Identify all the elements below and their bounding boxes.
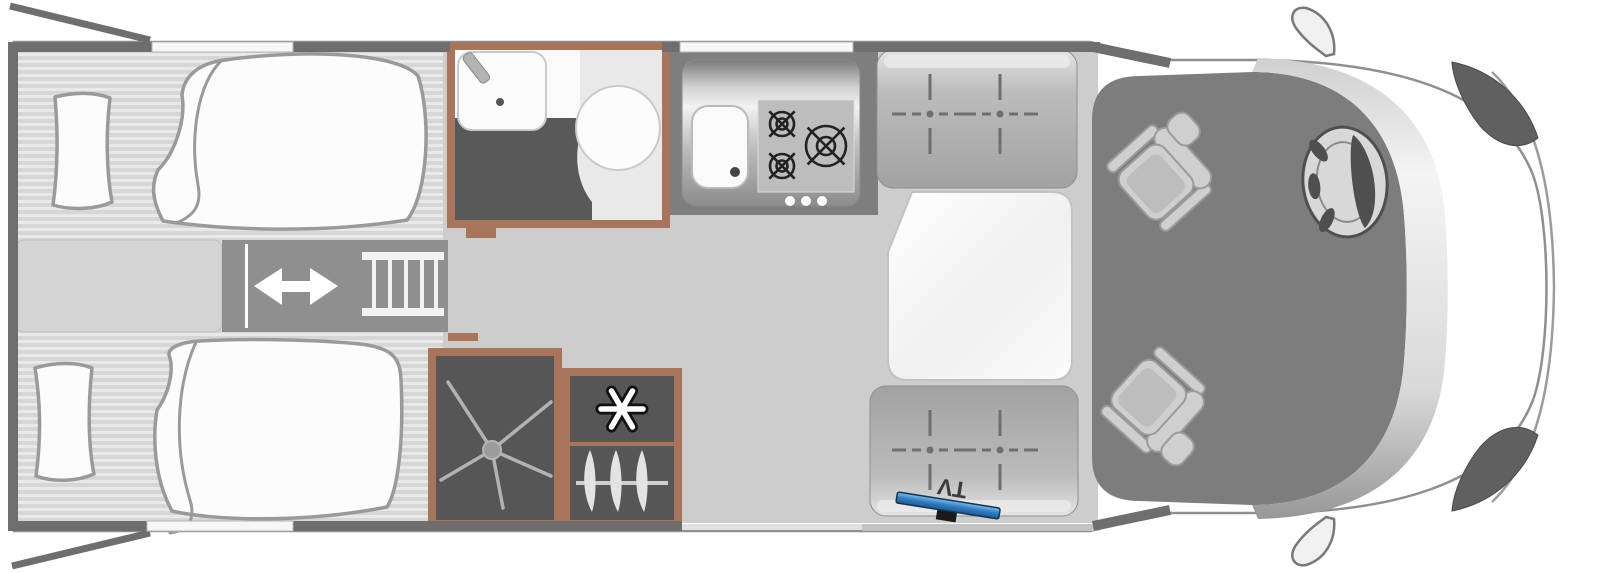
bathroom-door-stub [466,228,496,238]
pillow-bottom-bed [35,364,94,481]
rear-bedroom [16,54,448,533]
window-kitchen [680,42,853,52]
dinette-bench-front [877,50,1077,188]
kitchen [682,60,860,206]
fridge-wardrobe-unit [562,368,682,528]
kitchen-sink [692,106,748,188]
bathroom [447,42,670,238]
shower-tray [436,356,554,520]
hob-knobs [785,196,827,206]
pillow-top-bed [53,93,112,208]
basin-drain [496,98,504,106]
tv-label: TV [935,473,969,503]
bathroom-floor-dark [455,118,592,220]
window-bed-bottom [147,521,293,531]
toilet [576,86,660,170]
dinette-table [888,192,1072,380]
door-mirror-bottom-icon [1292,517,1334,565]
rear-garage-door-flap-top [10,6,150,40]
rear-wall [8,42,18,531]
center-cabinet [16,240,222,332]
door-mirror-top-icon [1292,8,1334,56]
window-bed-top [152,42,293,52]
shower [428,333,562,528]
duvet-bottom-bed [155,340,402,519]
sink-drain [730,167,740,177]
dinette: TV [870,50,1078,529]
motorhome-floorplan: TV [0,0,1598,573]
side-wall-light [862,524,1100,531]
entry-door-opening [682,524,862,529]
rear-garage-door-flap-bottom [12,533,150,566]
